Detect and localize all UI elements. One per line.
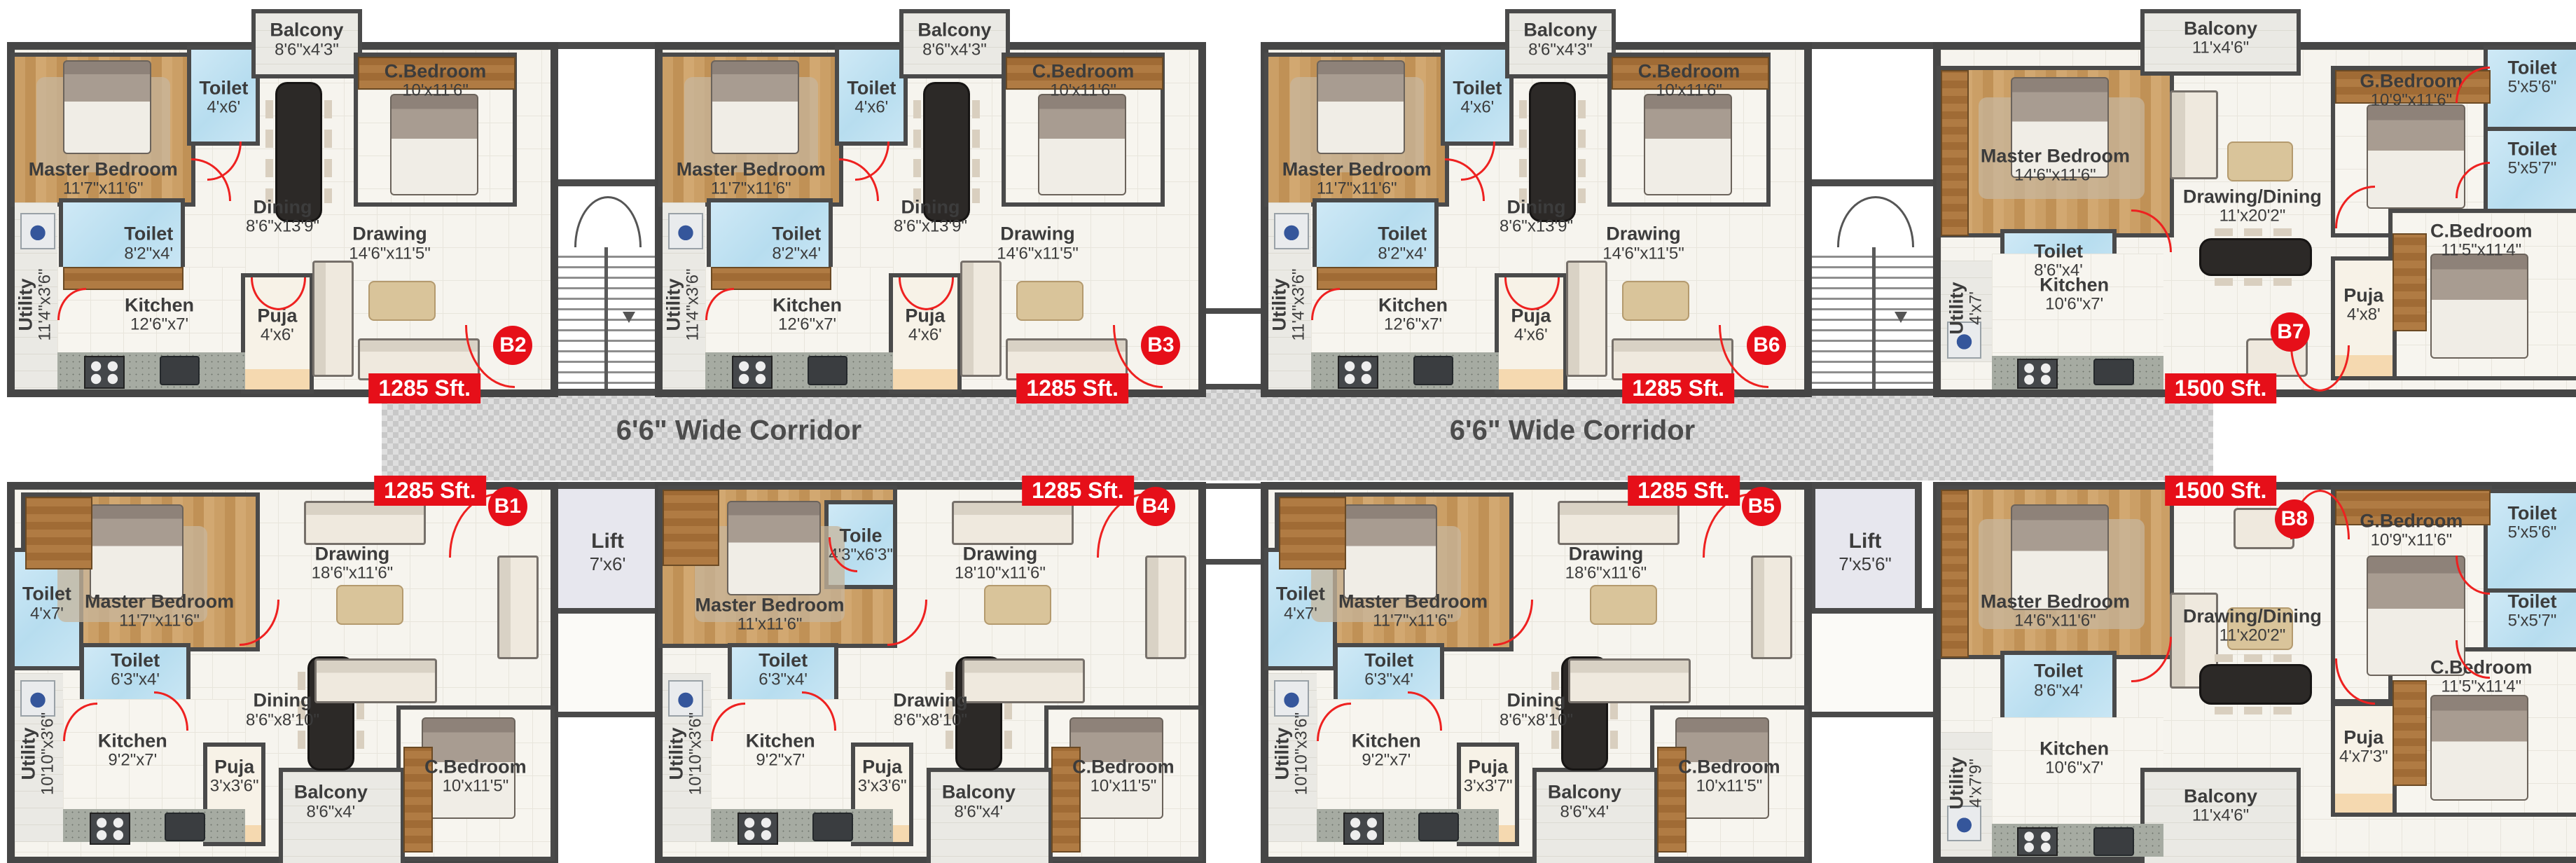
coffee-table <box>2227 141 2294 181</box>
sink <box>2093 827 2134 856</box>
room-label-c-bedroom: C.Bedroom10'x11'6" <box>1032 61 1135 99</box>
unit-B3: Master Bedroom11'7"x11'6"Toilet4'x6'Balc… <box>655 42 1206 397</box>
lift-left-label: Lift <box>591 530 624 553</box>
washing-machine <box>1274 680 1309 716</box>
washing-machine <box>668 680 703 716</box>
room-label-puja: Puja4'x7'3" <box>2339 727 2388 766</box>
room-label-toilet: Toilet6'3"x4' <box>759 650 808 689</box>
unit-B7: Master Bedroom14'6"x11'6"Balcony11'x4'6"… <box>1933 42 2576 397</box>
room-label-dining: Dining8'6"x8'10" <box>1500 691 1573 729</box>
room-label-utility: Utility4'x7'9" <box>1947 757 1986 810</box>
sofa <box>2170 90 2219 179</box>
bed <box>711 60 799 155</box>
room-label-utility: Utility10'10"x3'6" <box>1272 712 1310 795</box>
wardrobe <box>25 497 92 569</box>
room-label-toilet: Toilet8'2"x4' <box>124 224 173 263</box>
bed <box>1317 60 1405 155</box>
sofa <box>314 658 436 703</box>
room-label-drawing: Drawing14'6"x11'5" <box>349 224 431 263</box>
room-label-c-bedroom: C.Bedroom11'5"x11'4" <box>2430 221 2533 259</box>
room-label-master-bedroom: Master Bedroom11'7"x11'6" <box>677 160 826 198</box>
room-label-dining: Dining8'6"x8'10" <box>246 691 319 729</box>
room-label-toilet: Toilet6'3"x4' <box>1364 650 1413 689</box>
bed <box>2430 695 2528 801</box>
room-label-puja: Puja4'x6' <box>905 305 945 344</box>
room-label-puja: Puja4'x6' <box>257 305 297 344</box>
sink <box>808 356 848 386</box>
room-label-master-bedroom: Master Bedroom11'7"x11'6" <box>1338 591 1488 630</box>
room-label-dining: Dining8'6"x13'9" <box>246 197 319 235</box>
room-label-kitchen: Kitchen12'6"x7' <box>125 296 194 334</box>
sink <box>812 813 853 841</box>
washing-machine <box>1947 806 1981 841</box>
room-label-toilet: Toilet4'x7' <box>1276 584 1325 623</box>
washing-machine <box>1274 213 1309 250</box>
sink <box>2093 359 2134 385</box>
bed <box>727 501 821 595</box>
bed <box>2430 254 2528 359</box>
washing-machine <box>20 680 55 716</box>
puja-pad <box>893 369 957 389</box>
lift-left-dims: 7'x6' <box>590 553 626 575</box>
lift-lobby-left <box>543 608 666 717</box>
stair-turn-arrow <box>1837 196 1914 247</box>
room-label-drawing: Drawing8'6"x8'10" <box>893 691 968 729</box>
sofa <box>1568 658 1690 703</box>
room-label-master-bedroom: Master Bedroom14'6"x11'6" <box>1981 146 2130 184</box>
sink <box>1418 813 1459 841</box>
coffee-table <box>1016 281 1083 321</box>
stair-down-arrow <box>1895 312 1907 323</box>
room-label-puja: Puja4'x6' <box>1511 305 1551 344</box>
unit-badge-B2: B2 <box>493 326 532 365</box>
bed <box>1644 94 1732 195</box>
sink <box>160 356 200 386</box>
room-label-balcony: Balcony11'x4'6" <box>2184 786 2257 824</box>
stove <box>2017 827 2058 856</box>
bed <box>90 504 183 599</box>
coffee-table <box>1590 585 1657 624</box>
bed <box>1038 94 1126 195</box>
room-label-kitchen: Kitchen9'2"x7' <box>98 731 167 770</box>
sofa <box>960 261 1002 377</box>
floor-plan: 6'6" Wide Corridor 6'6" Wide Corridor Li… <box>0 0 2576 863</box>
stove <box>732 356 773 389</box>
corridor-label-left: 6'6" Wide Corridor <box>616 415 861 447</box>
sofa <box>1558 501 1680 546</box>
sofa <box>1145 555 1187 658</box>
room-label-toilet: Toilet4'x7' <box>22 584 71 623</box>
bed <box>1343 504 1437 599</box>
stove <box>90 813 130 845</box>
wardrobe <box>2393 680 2427 786</box>
wardrobe <box>2393 233 2427 331</box>
room-label-c-bedroom: C.Bedroom10'x11'5" <box>1678 757 1780 795</box>
wardrobe <box>663 490 719 566</box>
coffee-table <box>984 585 1051 624</box>
puja-pad <box>2335 794 2393 813</box>
unit-B6: Master Bedroom11'7"x11'6"Toilet4'x6'Balc… <box>1261 42 1812 397</box>
wardrobe <box>1941 490 1969 658</box>
room-label-utility: Utility4'x7' <box>1947 282 1986 334</box>
door-arc <box>855 141 889 181</box>
room-label-dining: Dining8'6"x13'9" <box>1500 197 1573 235</box>
unit-badge-B8: B8 <box>2275 499 2314 539</box>
lift-right-dims: 7'x5'6" <box>1838 553 1892 575</box>
wardrobe <box>711 267 831 290</box>
unit-B1: Master Bedroom11'7"x11'6"Toilet4'x7'Toil… <box>7 482 558 863</box>
washing-machine <box>20 213 55 250</box>
room-label-drawing: Drawing18'6"x11'6" <box>312 544 394 582</box>
room-label-toilet: Toilet4'x6' <box>1453 78 1502 116</box>
room-label-toilet: Toilet6'3"x4' <box>111 650 160 689</box>
dining-table <box>2201 240 2309 275</box>
coffee-table <box>368 281 436 321</box>
room-label-puja: Puja3'x3'6" <box>858 757 907 795</box>
room-label-kitchen: Kitchen9'2"x7' <box>1352 731 1421 770</box>
room-label-master-bedroom: Master Bedroom14'6"x11'6" <box>1981 591 2130 630</box>
door-arc <box>240 600 279 646</box>
sink <box>1413 356 1454 386</box>
room-label-balcony: Balcony11'x4'6" <box>2184 19 2257 57</box>
sofa <box>962 658 1084 703</box>
area-banner-B3: 1285 Sft. <box>1016 373 1128 403</box>
room-label-puja: Puja3'x3'7" <box>1464 757 1513 795</box>
coffee-table <box>336 585 403 624</box>
stove <box>2017 359 2058 389</box>
room-label-utility: Utility11'4"x3'6" <box>16 268 55 340</box>
sofa <box>497 555 539 658</box>
bed <box>2367 104 2465 209</box>
stair-turn-arrow <box>574 196 642 247</box>
area-banner-B1: 1285 Sft. <box>374 476 486 506</box>
stove <box>738 813 778 845</box>
room-label-drawing: Drawing14'6"x11'5" <box>1602 224 1684 263</box>
room-label-master-bedroom: Master Bedroom11'7"x11'6" <box>85 591 234 630</box>
lift-left: Lift 7'x6' <box>550 482 665 622</box>
room-label-c-bedroom: C.Bedroom10'x11'6" <box>1638 61 1740 99</box>
room-label-kitchen: Kitchen9'2"x7' <box>746 731 815 770</box>
room-label-kitchen: Kitchen12'6"x7' <box>773 296 842 334</box>
dining-table <box>2201 666 2309 703</box>
staircase-right <box>1801 179 1946 396</box>
room-label-toilet: Toilet8'2"x4' <box>1378 224 1427 263</box>
shaft-left <box>543 42 669 193</box>
area-banner-B7: 1500 Sft. <box>2165 373 2277 403</box>
stair-down-arrow <box>623 312 635 323</box>
area-banner-B5: 1285 Sft. <box>1628 476 1740 506</box>
unit-B4: Master Bedroom11'x11'6"Toile4'3"x6'3"Toi… <box>655 482 1206 863</box>
room-label-utility: Utility10'10"x3'6" <box>18 712 57 795</box>
stair-divider <box>1872 247 1876 389</box>
room-label-puja: Puja3'x3'6" <box>210 757 259 795</box>
area-banner-B2: 1285 Sft. <box>368 373 480 403</box>
washing-machine <box>668 213 703 250</box>
room-label-toilet: Toilet4'x6' <box>199 78 248 116</box>
room-label-toilet: Toilet5'x5'7" <box>2507 591 2556 630</box>
door-arc <box>1461 141 1495 181</box>
room-label-toilet: Toilet5'x5'7" <box>2507 139 2556 178</box>
room-label-kitchen: Kitchen10'6"x7' <box>2040 738 2109 777</box>
room-label-toilet: Toilet8'2"x4' <box>772 224 821 263</box>
room-label-utility: Utility10'10"x3'6" <box>666 712 705 795</box>
lift-lobby-right <box>1796 608 1943 717</box>
wardrobe <box>1941 70 1969 236</box>
wardrobe <box>1317 267 1437 290</box>
door-arc <box>2319 345 2350 392</box>
sofa <box>1566 261 1608 377</box>
unit-B8: Master Bedroom14'6"x11'6"Toilet8'6"x4'Ut… <box>1933 482 2576 863</box>
unit-badge-B1: B1 <box>488 487 527 526</box>
shaft-right <box>1801 42 1946 193</box>
stove <box>1338 356 1378 389</box>
room-label-g-bedroom: G.Bedroom10'9"x11'6" <box>2360 511 2463 549</box>
room-label-drawing: Drawing18'6"x11'6" <box>1565 544 1647 582</box>
area-banner-B6: 1285 Sft. <box>1622 373 1734 403</box>
lift-right-label: Lift <box>1849 530 1882 553</box>
door-arc <box>887 600 927 646</box>
unit-badge-B6: B6 <box>1747 326 1786 365</box>
room-label-balcony: Balcony8'6"x4'3" <box>1523 20 1597 59</box>
room-label-toilet: Toilet5'x5'6" <box>2507 504 2556 542</box>
sofa <box>304 501 426 546</box>
unit-badge-B5: B5 <box>1742 487 1781 526</box>
room-label-balcony: Balcony8'6"x4' <box>294 782 368 821</box>
bed <box>63 60 151 155</box>
sofa <box>312 261 354 377</box>
room-label-utility: Utility11'4"x3'6" <box>1270 268 1308 340</box>
room-label-dining: Dining8'6"x13'9" <box>894 197 967 235</box>
room-label-puja: Puja4'x8' <box>2343 285 2383 324</box>
unit-B5: Master Bedroom11'7"x11'6"Toilet4'x7'Toil… <box>1261 482 1812 863</box>
room-label-c-bedroom: C.Bedroom10'x11'5" <box>1072 757 1175 795</box>
sink <box>165 813 205 841</box>
corridor-label-right: 6'6" Wide Corridor <box>1450 415 1695 447</box>
room-label-balcony: Balcony8'6"x4' <box>1548 782 1621 821</box>
wardrobe <box>63 267 183 290</box>
room-label-master-bedroom: Master Bedroom11'7"x11'6" <box>1282 160 1432 198</box>
room-label-master-bedroom: Master Bedroom11'7"x11'6" <box>29 160 178 198</box>
puja-pad <box>1499 369 1563 389</box>
area-banner-B4: 1285 Sft. <box>1022 476 1134 506</box>
puja-pad <box>245 369 310 389</box>
room-label-drawing-dining: Drawing/Dining11'x20'2" <box>2183 606 2322 644</box>
unit-B2: Master Bedroom11'7"x11'6"Toilet4'x6'Balc… <box>7 42 558 397</box>
room-label-c-bedroom: C.Bedroom10'x11'6" <box>385 61 487 99</box>
room-label-drawing-dining: Drawing/Dining11'x20'2" <box>2183 187 2322 226</box>
stair-divider <box>604 247 608 389</box>
room-label-utility: Utility11'4"x3'6" <box>664 268 702 340</box>
wardrobe <box>1279 497 1346 569</box>
room-label-master-bedroom: Master Bedroom11'x11'6" <box>695 595 844 634</box>
bed <box>390 94 478 195</box>
stove <box>84 356 125 389</box>
room-label-c-bedroom: C.Bedroom10'x11'5" <box>424 757 527 795</box>
lift-right: Lift 7'x5'6" <box>1808 482 1922 622</box>
room-label-toilet: Toilet8'6"x4' <box>2034 661 2083 700</box>
room-label-kitchen: Kitchen10'6"x7' <box>2040 275 2109 314</box>
sofa <box>1751 555 1793 658</box>
unit-badge-B3: B3 <box>1141 326 1180 365</box>
room-label-balcony: Balcony8'6"x4'3" <box>917 20 991 59</box>
room-label-drawing: Drawing18'10"x11'6" <box>955 544 1046 582</box>
unit-badge-B4: B4 <box>1136 487 1175 526</box>
room-label-toilet: Toilet5'x5'6" <box>2507 57 2556 96</box>
room-label-drawing: Drawing14'6"x11'5" <box>997 224 1079 263</box>
door-arc <box>1493 600 1533 646</box>
room-label-balcony: Balcony8'6"x4'3" <box>270 20 343 59</box>
room-label-toilet: Toilet4'x6' <box>847 78 896 116</box>
unit-badge-B7: B7 <box>2271 312 2310 352</box>
room-label-g-bedroom: G.Bedroom10'9"x11'6" <box>2360 71 2463 110</box>
room-label-kitchen: Kitchen12'6"x7' <box>1378 296 1448 334</box>
room-label-balcony: Balcony8'6"x4' <box>942 782 1016 821</box>
stove <box>1343 813 1384 845</box>
staircase-left <box>543 179 669 396</box>
door-arc <box>207 141 242 181</box>
area-banner-B8: 1500 Sft. <box>2165 476 2277 506</box>
sofa <box>952 501 1074 546</box>
coffee-table <box>1622 281 1689 321</box>
